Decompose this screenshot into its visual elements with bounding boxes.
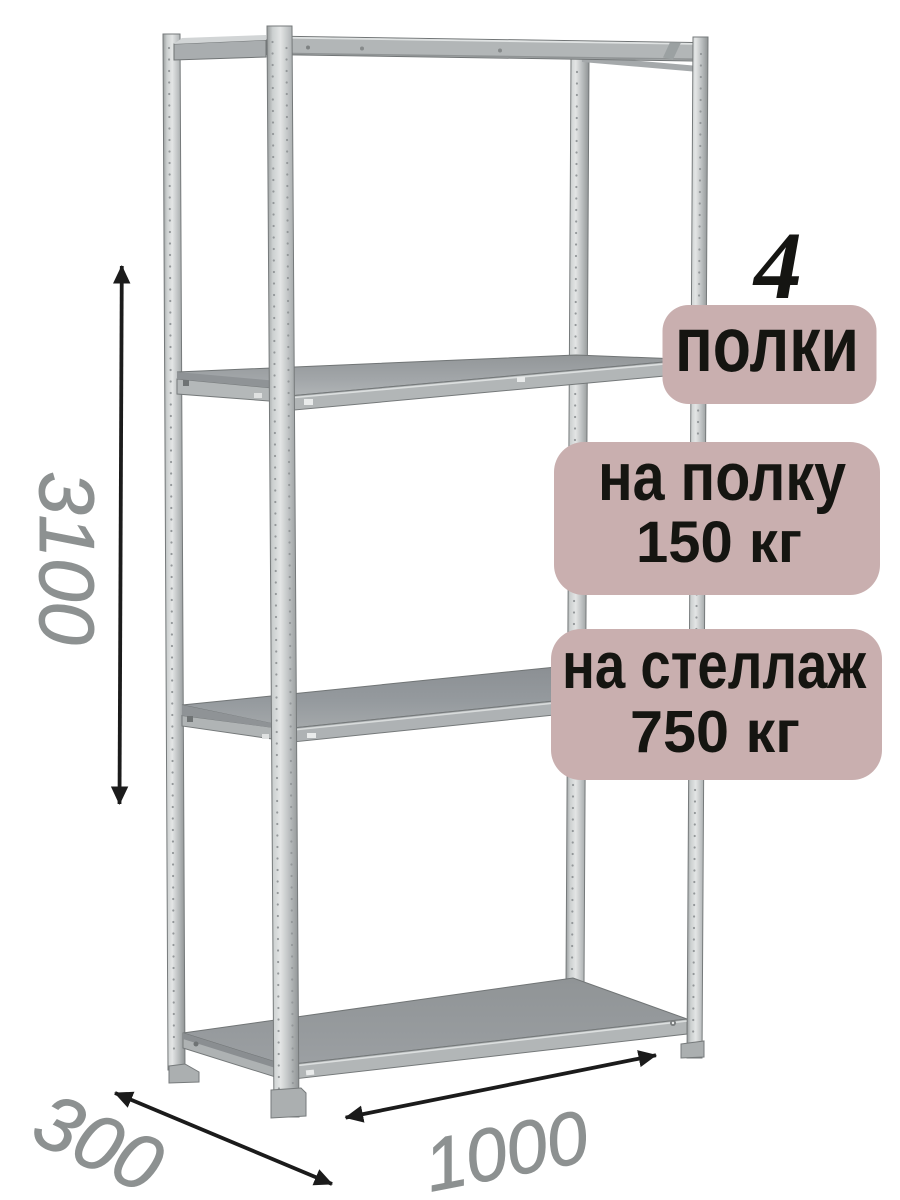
svg-text:150 кг: 150 кг xyxy=(636,510,802,575)
svg-text:750 кг: 750 кг xyxy=(630,699,800,765)
svg-text:полки: полки xyxy=(675,300,859,388)
svg-text:3100: 3100 xyxy=(23,471,111,645)
svg-text:на полку: на полку xyxy=(598,439,846,515)
svg-text:на стеллаж: на стеллаж xyxy=(562,628,867,702)
